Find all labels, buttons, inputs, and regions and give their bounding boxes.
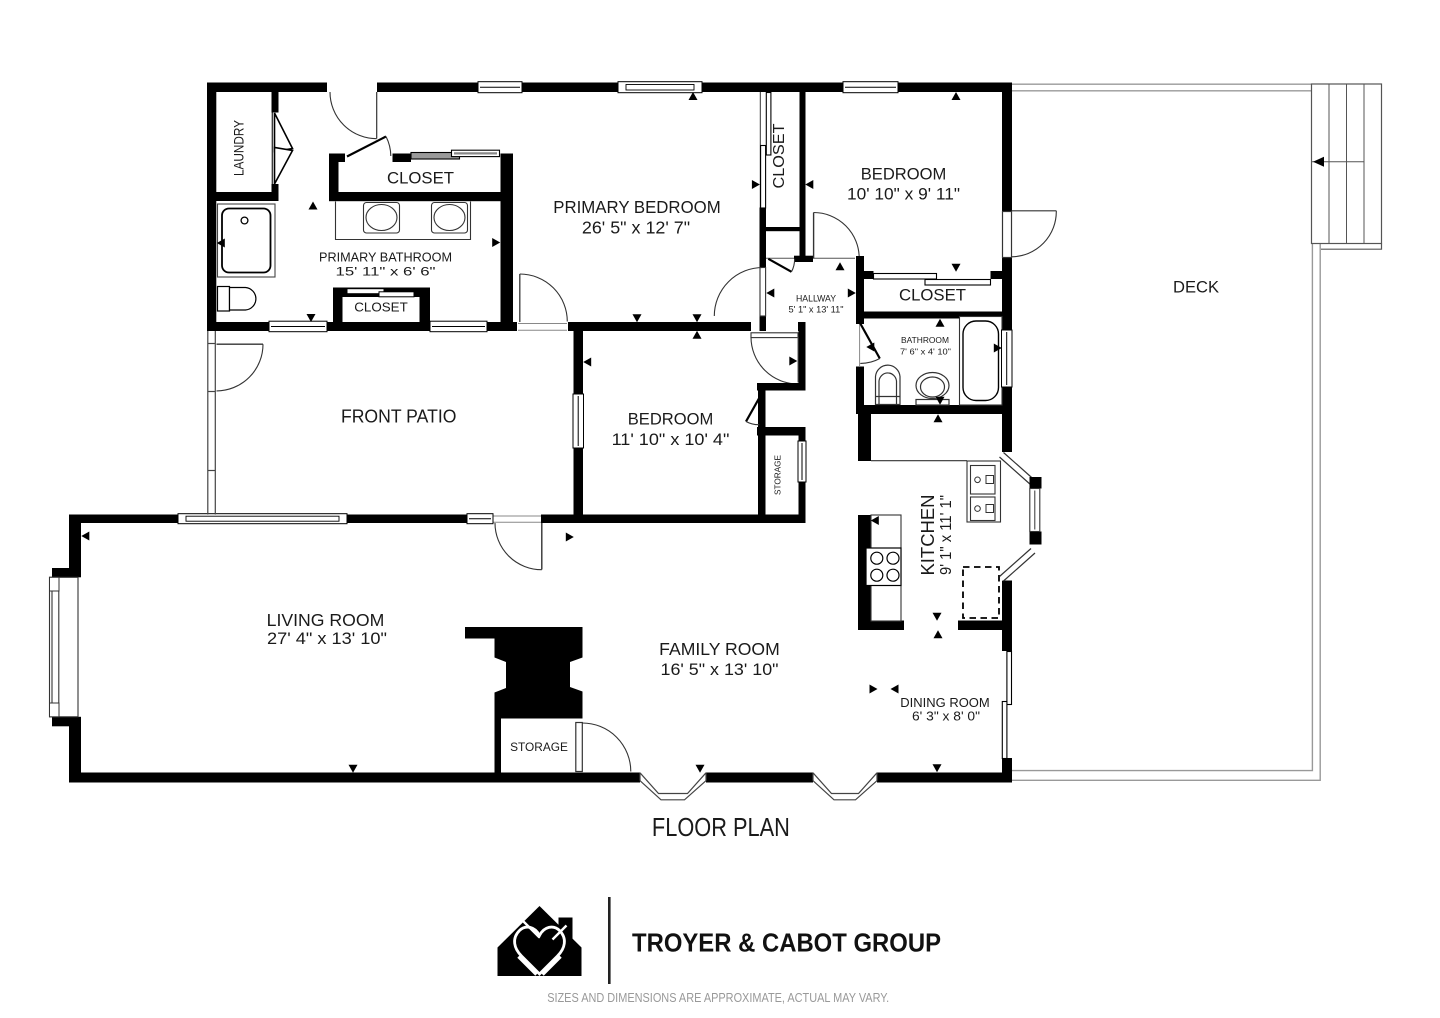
- svg-text:DECK: DECK: [1173, 278, 1220, 297]
- svg-text:LAUNDRY: LAUNDRY: [232, 120, 247, 176]
- svg-text:FLOOR PLAN: FLOOR PLAN: [652, 814, 790, 842]
- svg-text:11' 10" x 10' 4": 11' 10" x 10' 4": [612, 431, 730, 449]
- svg-text:STORAGE: STORAGE: [773, 455, 783, 495]
- svg-text:9' 1" x 11' 1": 9' 1" x 11' 1": [938, 495, 955, 575]
- svg-text:6' 3" x 8' 0": 6' 3" x 8' 0": [912, 710, 980, 724]
- svg-text:CLOSET: CLOSET: [771, 123, 788, 188]
- svg-text:TROYER & CABOT GROUP: TROYER & CABOT GROUP: [632, 928, 941, 958]
- svg-text:27' 4" x 13' 10": 27' 4" x 13' 10": [267, 630, 387, 648]
- svg-text:KITCHEN: KITCHEN: [917, 495, 938, 576]
- svg-text:LIVING ROOM: LIVING ROOM: [267, 611, 385, 630]
- svg-text:FAMILY ROOM: FAMILY ROOM: [659, 640, 780, 659]
- svg-text:FRONT PATIO: FRONT PATIO: [341, 406, 457, 426]
- svg-text:DINING ROOM: DINING ROOM: [900, 695, 989, 710]
- svg-text:26' 5" x 12' 7": 26' 5" x 12' 7": [582, 218, 690, 237]
- svg-text:STORAGE: STORAGE: [510, 740, 568, 754]
- svg-text:PRIMARY BATHROOM: PRIMARY BATHROOM: [319, 251, 452, 265]
- svg-text:15' 11" x 6' 6": 15' 11" x 6' 6": [336, 265, 436, 279]
- svg-text:CLOSET: CLOSET: [387, 170, 454, 188]
- svg-text:BEDROOM: BEDROOM: [861, 165, 947, 184]
- svg-text:PRIMARY BEDROOM: PRIMARY BEDROOM: [553, 198, 720, 217]
- svg-text:10' 10" x 9' 11": 10' 10" x 9' 11": [847, 185, 960, 203]
- svg-text:BATHROOM: BATHROOM: [901, 335, 949, 345]
- svg-text:16' 5" x 13' 10": 16' 5" x 13' 10": [661, 661, 779, 679]
- svg-text:CLOSET: CLOSET: [899, 287, 966, 305]
- svg-text:5' 1" x 13' 11": 5' 1" x 13' 11": [789, 305, 844, 315]
- svg-text:HALLWAY: HALLWAY: [796, 294, 837, 305]
- svg-text:7' 6" x 4' 10": 7' 6" x 4' 10": [900, 347, 951, 357]
- svg-text:SIZES AND DIMENSIONS ARE APPRO: SIZES AND DIMENSIONS ARE APPROXIMATE, AC…: [547, 990, 889, 1005]
- svg-text:BEDROOM: BEDROOM: [628, 410, 714, 429]
- svg-text:CLOSET: CLOSET: [354, 300, 408, 315]
